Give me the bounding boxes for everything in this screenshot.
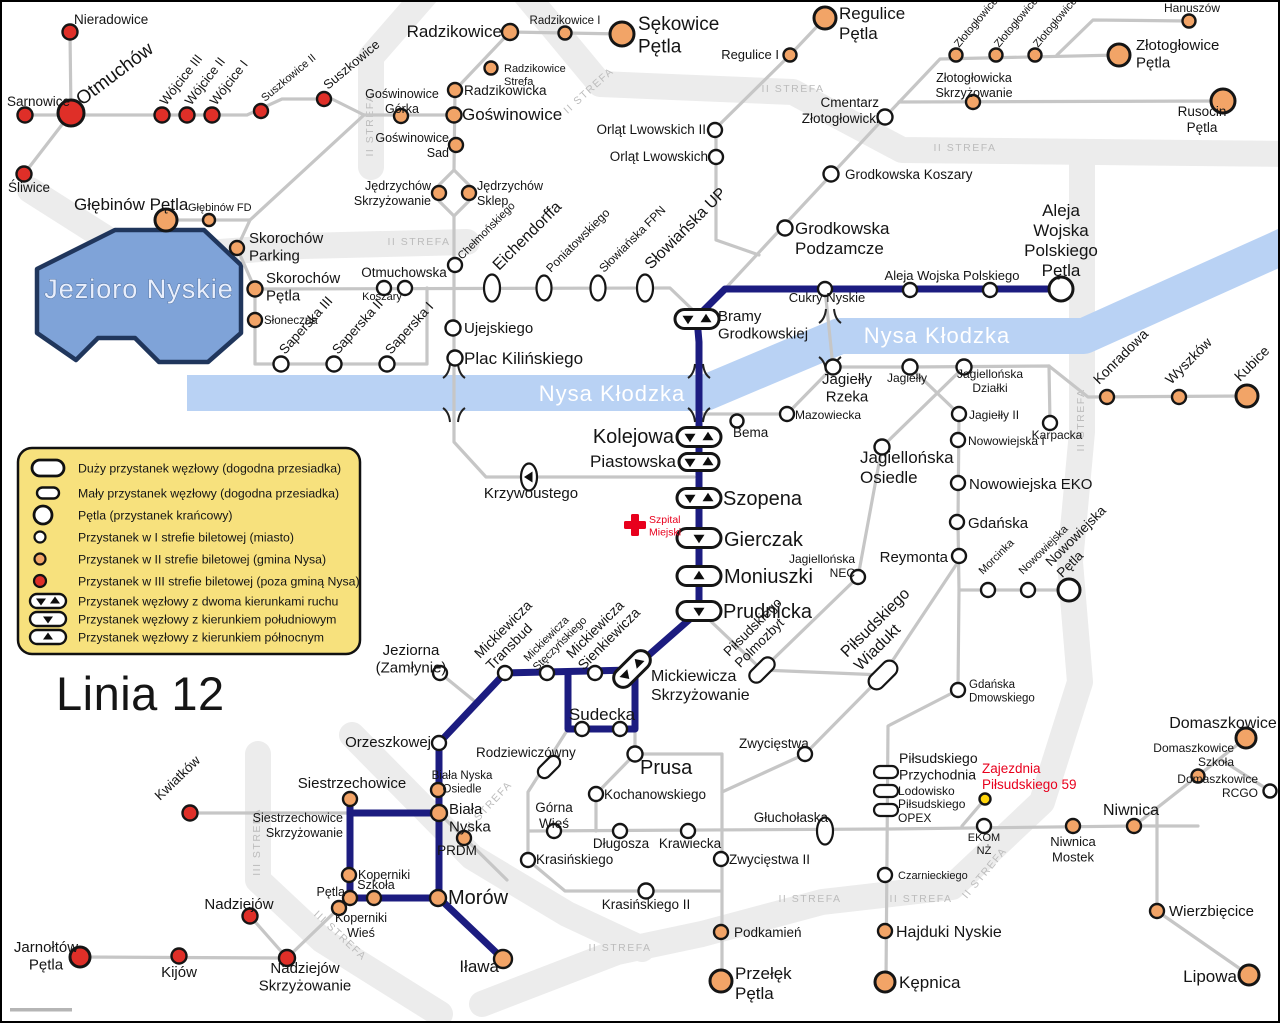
stop-czarnieckiego: [878, 868, 892, 882]
label-krasińskiego-ii: Krasińskiego II: [602, 897, 691, 912]
stop-glebinow-fd: [203, 214, 215, 226]
label-złotogłowicka-skrzyżowanie: ZłotogłowickaSkrzyżowanie: [935, 71, 1012, 100]
label-zwycięstwa-ii: Zwycięstwa II: [729, 852, 810, 867]
pill-shape-lodowisko: [874, 785, 898, 797]
pill-piastowska: [679, 454, 719, 471]
label-grodkowska-koszary: Grodkowska Koszary: [845, 167, 973, 182]
gray-line: [528, 826, 1198, 831]
label-kolejowa: Kolejowa: [593, 426, 675, 448]
label-domaszkowice-szkoła: DomaszkowiceSzkoła: [1153, 741, 1234, 769]
pill-pilsudskiego-przychodnia: [874, 766, 898, 778]
stop-sudecka-2: [613, 722, 627, 736]
label-goświnowice-sad: GoświnowiceSad: [375, 131, 449, 160]
stop-nowowiejska: [1021, 583, 1035, 597]
label-niwnica: Niwnica: [1103, 802, 1159, 819]
lake-label: Jezioro Nyskie: [44, 274, 234, 304]
stop-wojcice-i: [205, 108, 220, 123]
stop-wyszkow: [1172, 390, 1186, 404]
stop-hajduki-nyskie: [878, 924, 892, 938]
legend-circle-petla: [34, 506, 52, 524]
pill-lodowisko: [874, 785, 898, 797]
label-otmuchowska: Otmuchowska: [361, 265, 447, 280]
zone-label: II STREFA: [778, 893, 841, 905]
label-nieradowice: Nieradowice: [74, 12, 148, 27]
pill-shape-kolejowa: [677, 428, 721, 447]
label-prdm: PRDM: [437, 843, 477, 858]
stop-sarnowice: [18, 108, 33, 123]
pill-slowianska-fpn: [591, 276, 606, 301]
label-rusocin-pętla: RusocinPętla: [1178, 104, 1227, 135]
pill-shape-pilsudskiego-przychodnia: [874, 766, 898, 778]
label-górna-wieś: GórnaWieś: [535, 800, 573, 831]
label-głuchołaska: Głuchołaska: [754, 810, 829, 825]
label-iława: Iława: [459, 957, 499, 976]
legend-pill-sm: [37, 488, 59, 499]
label-gierczak: Gierczak: [724, 529, 804, 551]
label-gdańska: Gdańska: [968, 515, 1029, 532]
stop-goswinowice: [447, 108, 462, 123]
stop-sloneczna: [248, 313, 262, 327]
legend-item-label: Przystanek węzłowy z dwoma kierunkami ru…: [78, 595, 339, 609]
label-piłsudskiego-przychodnia: PiłsudskiegoPrzychodnia: [899, 750, 978, 783]
pill-pilsudskiego-opex: [874, 804, 898, 816]
label-kwiatków: Kwiatków: [152, 753, 204, 804]
pill-prudnicka: [677, 602, 721, 621]
gray-line: [1049, 366, 1050, 423]
label-niwnica-mostek: NiwnicaMostek: [1050, 834, 1096, 864]
label-pętla: Pętla: [317, 885, 346, 899]
stop-mazowiecka: [780, 407, 794, 421]
legend-item-label: Przystanek w II strefie biletowej (gmina…: [78, 553, 326, 567]
label-saperska-ii: Saperska II: [329, 296, 386, 357]
zone-label: II STREFA: [933, 142, 996, 154]
stop-ujejskiego: [446, 321, 461, 336]
stop-ekom-nz: [977, 819, 991, 833]
stop-skorochow-parking: [230, 241, 244, 255]
label-kochanowskiego: Kochanowskiego: [604, 787, 706, 802]
pill-shape-slowianska-fpn: [591, 276, 606, 301]
label-orląt-lwowskich-ii: Orląt Lwowskich II: [596, 122, 706, 137]
label-złotogłowice-pętla: ZłotogłowicePętla: [1136, 37, 1219, 72]
label-lodowisko: Lodowisko: [898, 784, 955, 798]
label-radzikowice: Radzikowice: [407, 22, 502, 41]
label-przełęk-pętla: PrzełękPętla: [735, 964, 792, 1003]
label-sudecka: Sudecka: [569, 705, 636, 724]
stop-plac-kilinskiego: [448, 351, 463, 366]
stop-gdanska-dmowskiego: [951, 683, 965, 697]
label-hajduki-nyskie: Hajduki Nyskie: [896, 924, 1002, 941]
label-grodkowska-podzamcze: GrodkowskaPodzamcze: [795, 219, 890, 258]
stop-zwyciestwa-ii: [714, 852, 728, 866]
legend-item-pill-lg: Duży przystanek węzłowy (dogodna przesia…: [32, 460, 341, 476]
label-regulice-i: Regulice I: [721, 47, 779, 62]
zone-label: II STREFA: [761, 83, 824, 95]
pill-szopena: [677, 489, 721, 508]
label-bema: Bema: [733, 425, 769, 440]
label-krawiecka: Krawiecka: [659, 836, 722, 851]
map-canvas: II STREFAII STREFAII STREFAII STREFAII S…: [2, 2, 1280, 1023]
label-zwycięstwa: Zwycięstwa: [739, 736, 809, 751]
stop-saperska-ii: [327, 357, 342, 372]
label-prusa: Prusa: [640, 757, 693, 779]
label-krzywoustego: Krzywoustego: [484, 485, 578, 502]
transit-map-linia-12: II STREFAII STREFAII STREFAII STREFAII S…: [0, 0, 1280, 1023]
label-złotogłowice-iii: Złotogłowice III: [1031, 2, 1087, 50]
label-nadziejów: Nadziejów: [204, 896, 273, 913]
hospital-cross-icon: [624, 514, 646, 536]
pill-moniuszki: [677, 567, 721, 586]
stop-zlotoglowice-petla: [1108, 44, 1130, 66]
pill-kolejowa: [677, 428, 721, 447]
legend-item-label: Mały przystanek węzłowy (dogodna przesia…: [78, 487, 339, 501]
stop-grodkowska-podzamcze: [778, 221, 793, 236]
lake-jezioro-nyskie: Jezioro Nyskie: [37, 230, 241, 362]
stop-aleja-wojska-polskiego-2: [983, 283, 997, 297]
label-czarnieckiego: Czarnieckiego: [898, 870, 968, 882]
label-reymonta: Reymonta: [880, 549, 949, 566]
zone-label: II STREFA: [889, 893, 952, 905]
legend-dot-zone3: [34, 575, 46, 587]
stop-gdanska: [950, 515, 964, 529]
label-suszkowice-ii: Suszkowice II: [259, 52, 318, 104]
legend-dot-zone2: [35, 554, 46, 565]
label-mickiewicza-skrzyżowanie: MickiewiczaSkrzyżowanie: [651, 668, 750, 704]
label-jeziorna-zamłynie: Jeziorna(Zamłynie): [376, 642, 447, 677]
label-szkoła: Szkoła: [357, 878, 395, 892]
stop-suszkowice-ii: [254, 104, 268, 118]
label-jędrzychów-skrzyżowanie: JędrzychówSkrzyżowanie: [354, 179, 432, 208]
gray-line: [1157, 809, 1249, 975]
label-jagiełły-rzeka: JagiełłyRzeka: [822, 371, 873, 406]
label-szopena: Szopena: [723, 488, 803, 510]
label-piastowska: Piastowska: [590, 452, 677, 471]
stop-radzikowice-i: [559, 27, 572, 40]
label-kijów: Kijów: [161, 964, 197, 981]
label-śliwice: Śliwice: [8, 180, 50, 195]
label-sarnowice: Sarnowice: [7, 94, 70, 109]
label-siestrzechowice-skrzyżowanie: SiestrzechowiceSkrzyżowanie: [253, 811, 343, 840]
stop-nowowiejska-i: [951, 433, 965, 447]
stop-zajezdnia-pilsudskiego-59: [980, 794, 991, 805]
pill-bramy-grodkowskiej: [675, 310, 719, 329]
pill-gierczak: [677, 529, 721, 548]
label-rodziewiczówny: Rodziewiczówny: [476, 745, 576, 760]
stop-skorochow-petla: [248, 282, 263, 297]
river-label: Nysa Kłodzka: [539, 381, 686, 406]
label-radzikowice-i: Radzikowice I: [530, 15, 601, 27]
stop-kochanowskiego: [589, 787, 603, 801]
stop-kwiatkow: [183, 806, 198, 821]
label-domaszkowice: Domaszkowice: [1169, 715, 1277, 732]
label-sękowice-pętla: SękowicePętla: [638, 14, 719, 57]
stop-orzeszkowej: [432, 736, 446, 750]
pill-slowianska-up: [637, 275, 653, 302]
zone-label: II STREFA: [588, 942, 651, 954]
label-hanuszów: Hanuszów: [1164, 2, 1220, 15]
label-długosza: Długosza: [593, 836, 650, 851]
stop-regulice-i: [784, 49, 797, 62]
stop-krasinskiego: [521, 853, 535, 867]
stop-koperniki: [342, 868, 356, 882]
stop-radzikowice-strefa: [485, 62, 498, 75]
label-radzikowicka: Radzikowicka: [464, 83, 547, 98]
stop-sudecka-1: [575, 722, 589, 736]
stop-jedrzychow-sklep: [462, 186, 476, 200]
pill-shape-piastowska: [679, 454, 719, 471]
legend-item-label: Przystanek w III strefie biletowej (poza…: [78, 575, 360, 589]
zone-label: II STREFA: [364, 93, 376, 156]
legend-item-dot-o: Przystanek w II strefie biletowej (gmina…: [35, 553, 327, 567]
label-plac-kilińskiego: Plac Kilińskiego: [464, 349, 583, 368]
stop-biala-nyska: [431, 805, 447, 821]
label-mazowiecka: Mazowiecka: [795, 408, 861, 422]
label-krasińskiego: Krasińskiego: [536, 852, 613, 867]
label-jagiellońska-osiedle: JagiellońskaOsiedle: [860, 448, 954, 487]
label-nowowiejska-eko: Nowowiejska EKO: [969, 476, 1092, 493]
legend-pill-arrows: [30, 594, 66, 608]
gray-line: [883, 562, 958, 675]
stop-wojcice-ii: [180, 108, 195, 123]
label-głębinów-pętla: Głębinów Pętla: [74, 195, 189, 214]
label-jagiełły: Jagiełły: [887, 371, 927, 385]
pill-shape-pilsudskiego-opex: [874, 804, 898, 816]
label-bramy-grodkowskiej: BramyGrodkowskiej: [718, 308, 808, 343]
stop-jagielly-ii: [952, 407, 966, 421]
pill-shape-szopena: [677, 489, 721, 508]
label-nowowiejska-i: Nowowiejska I: [968, 434, 1045, 448]
pill-shape-slowianska-up: [637, 275, 653, 302]
legend-item-label: Duży przystanek węzłowy (dogodna przesia…: [78, 462, 341, 476]
label-nadziejów-skrzyżowanie: NadziejówSkrzyżowanie: [259, 960, 352, 995]
label-podkamień: Podkamień: [734, 925, 802, 940]
label-kępnica: Kępnica: [899, 973, 961, 992]
cross-bar: [631, 514, 639, 536]
stop-domaszkowice-rcgo: [1264, 785, 1277, 798]
stop-siestrzechowice: [343, 792, 357, 806]
stop-orlat-lwowskich: [709, 150, 723, 164]
gray-line: [899, 101, 1223, 102]
label-moniuszki: Moniuszki: [724, 566, 813, 588]
stop-orlat-lwowskich-ii: [708, 123, 722, 137]
stop-regulice-petla: [814, 7, 836, 29]
label-ujejskiego: Ujejskiego: [464, 320, 533, 337]
label-otmuchów: Otmuchów: [72, 38, 157, 110]
label-siestrzechowice: Siestrzechowice: [298, 775, 406, 792]
stop-mickiewicza-transbud: [498, 666, 512, 680]
legend-dot-zone1: [35, 532, 46, 543]
stop-niwnica: [1127, 819, 1141, 833]
pill-shape-poniatowskiego: [537, 276, 552, 301]
stop-aleja-wojska-polskiego-petla: [1049, 277, 1073, 301]
pill-shape-eichendorffa: [484, 275, 500, 302]
pill-eichendorffa: [484, 275, 500, 302]
stop-sekowice-petla: [610, 22, 634, 46]
label-aleja-wojska-polskiego: Aleja Wojska Polskiego: [885, 268, 1020, 283]
stop-grodkowska-koszary: [824, 167, 839, 182]
stop-wojcice-iii: [155, 108, 170, 123]
legend-item-label: Przystanek węzłowy z kierunkiem północny…: [78, 631, 324, 645]
label-jagiellońska-działki: JagiellońskaDziałki: [957, 367, 1023, 395]
legend-item-pill-sm: Mały przystanek węzłowy (dogodna przesia…: [37, 487, 339, 501]
stop-reymonta: [952, 549, 966, 563]
stop-morow: [430, 890, 446, 906]
attribution-smallprint: [10, 1008, 72, 1012]
label-goświnowice: Goświnowice: [462, 105, 562, 124]
legend-item-label: Przystanek węzłowy z kierunkiem południo…: [78, 613, 336, 627]
stop-goswinowice-sad: [449, 138, 463, 152]
stop-cmentarz-zlotoglowicki: [878, 110, 893, 125]
stop-radzikowice: [502, 24, 518, 40]
stop-saperska-iii: [274, 357, 289, 372]
stop-konradowa: [1100, 390, 1114, 404]
label-lipowa: Lipowa: [1183, 967, 1237, 986]
label-morów: Morów: [448, 887, 509, 909]
legend: Duży przystanek węzłowy (dogodna przesia…: [18, 448, 360, 654]
legend-item-label: Pętla (przystanek krańcowy): [78, 509, 232, 523]
stop-kijow: [172, 949, 187, 964]
label-gdańska-dmowskiego: GdańskaDmowskiego: [969, 679, 1035, 705]
label-cukry-nyskie: Cukry Nyskie: [789, 290, 866, 305]
stop-niwnica-mostek: [1066, 819, 1080, 833]
stop-podkamien: [714, 925, 728, 939]
stop-nowowiejska-eko: [951, 476, 965, 490]
label-szpital-miejski: SzpitalMiejski: [649, 514, 681, 538]
label-piłsudskiego-opex: PiłsudskiegoOPEX: [898, 797, 966, 825]
stop-morcinka: [981, 583, 995, 597]
zone-label: II STREFA: [1075, 388, 1087, 451]
stop-kepnica: [875, 972, 895, 992]
stop-chelmonskiego: [448, 258, 462, 272]
legend-pill-lg: [32, 460, 64, 476]
label-orląt-lwowskich: Orląt Lwowskich: [610, 149, 708, 164]
zone-label: II STREFA: [387, 236, 450, 248]
stop-aleja-wojska-polskiego-1: [903, 283, 917, 297]
stop-suszkowice: [317, 92, 331, 106]
stop-saperska-i: [380, 357, 395, 372]
bridge-mark: [819, 309, 826, 323]
stop-lipowa: [1239, 965, 1259, 985]
map-title: Linia 12: [56, 666, 225, 721]
stop-hanuszow: [1183, 15, 1196, 28]
stop-nowowiejska-petla: [1058, 579, 1080, 601]
stop-przelek-petla: [710, 970, 732, 992]
gray-line: [250, 115, 364, 220]
stop-radzikowicka: [448, 83, 462, 97]
river-label: Nysa Kłodzka: [864, 323, 1011, 348]
label-regulice-pętla: RegulicePętla: [839, 4, 905, 43]
label-jagiełły-ii: Jagiełły II: [969, 408, 1019, 422]
label-koszary: Koszary: [362, 291, 402, 303]
label-orzeszkowej: Orzeszkowej: [345, 734, 431, 751]
label-morcinka: Morcinka: [977, 536, 1018, 577]
legend-item-label: Przystanek w I strefie biletowej (miasto…: [78, 531, 294, 545]
stop-jedrzychow-skrzyzowanie: [432, 186, 446, 200]
label-domaszkowice-rcgo: DomaszkowiceRCGO: [1177, 772, 1258, 800]
pill-poniatowskiego: [537, 276, 552, 301]
stop-wierzbiecice: [1150, 904, 1164, 918]
label-głębinów-fd: Głębinów FD: [188, 202, 252, 214]
pill-shape-bramy-grodkowskiej: [675, 310, 719, 329]
stop-koperniki-szkola: [367, 891, 381, 905]
label-kubice: Kubice: [1231, 342, 1273, 384]
legend-item-dot-r: Przystanek w III strefie biletowej (poza…: [34, 575, 360, 589]
label-wierzbięcice: Wierzbięcice: [1169, 903, 1254, 920]
label-wyszków: Wyszków: [1162, 333, 1216, 387]
stop-kubice: [1236, 385, 1258, 407]
